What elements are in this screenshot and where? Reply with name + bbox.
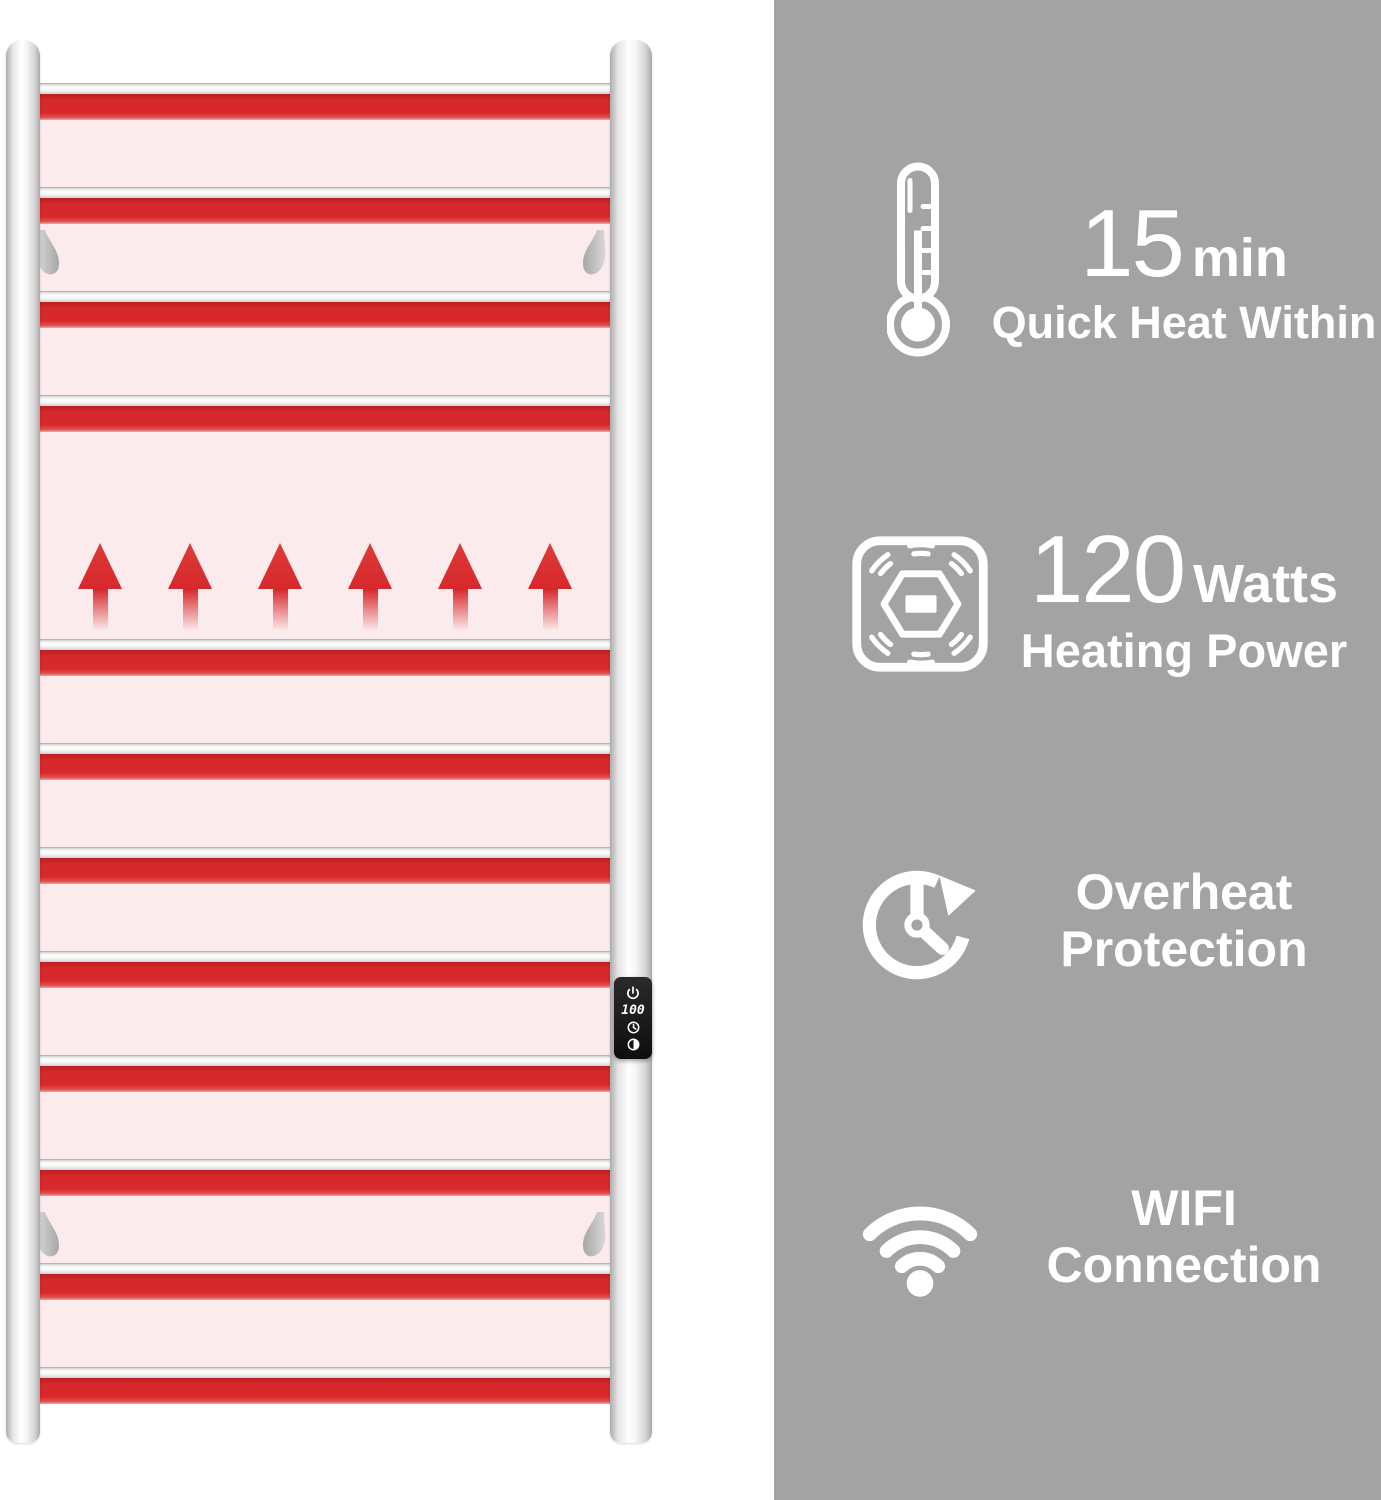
heated-rung bbox=[32, 639, 620, 676]
right-rail bbox=[610, 40, 652, 1443]
heated-rung bbox=[32, 1367, 620, 1404]
feature-label: Quick Heat Within bbox=[977, 298, 1381, 348]
heated-rung bbox=[32, 847, 620, 884]
feature-title: WIFI bbox=[977, 1180, 1381, 1237]
product-feature-image: { "towel_warmer": { "control_panel": { "… bbox=[0, 0, 1381, 1500]
feature-label: Heating Power bbox=[977, 626, 1381, 676]
wall-mount-hook bbox=[582, 1212, 608, 1260]
heated-rung bbox=[32, 395, 620, 432]
heat-arrow bbox=[528, 543, 572, 631]
feature-headline: 15min bbox=[977, 196, 1381, 292]
heated-rung bbox=[32, 187, 620, 224]
feature-subtitle: Protection bbox=[977, 921, 1381, 978]
left-rail bbox=[6, 40, 40, 1443]
control-panel: 100 bbox=[614, 977, 652, 1059]
towel-warmer: 100 bbox=[6, 40, 654, 1446]
heated-rung bbox=[32, 1263, 620, 1300]
feature-headline: 120Watts bbox=[977, 522, 1381, 618]
heat-arrow bbox=[438, 543, 482, 631]
timer-icon bbox=[627, 1021, 640, 1034]
heat-arrow bbox=[78, 543, 122, 631]
heated-rung bbox=[32, 743, 620, 780]
feature-subtitle: Connection bbox=[977, 1237, 1381, 1294]
heated-rung bbox=[32, 1159, 620, 1196]
heated-rung bbox=[32, 291, 620, 328]
heat-arrow bbox=[258, 543, 302, 631]
heated-rung bbox=[32, 83, 620, 120]
feature-panel: 15min Quick Heat Within bbox=[774, 0, 1381, 1500]
heat-mode-icon bbox=[627, 1038, 640, 1051]
heated-rung bbox=[32, 1055, 620, 1092]
feature-title: Overheat bbox=[977, 864, 1381, 921]
heat-arrow bbox=[168, 543, 212, 631]
power-icon bbox=[626, 986, 640, 1000]
heated-rung bbox=[32, 951, 620, 988]
wall-mount-hook bbox=[582, 230, 608, 278]
heat-arrow bbox=[348, 543, 392, 631]
temperature-display: 100 bbox=[621, 1004, 644, 1017]
